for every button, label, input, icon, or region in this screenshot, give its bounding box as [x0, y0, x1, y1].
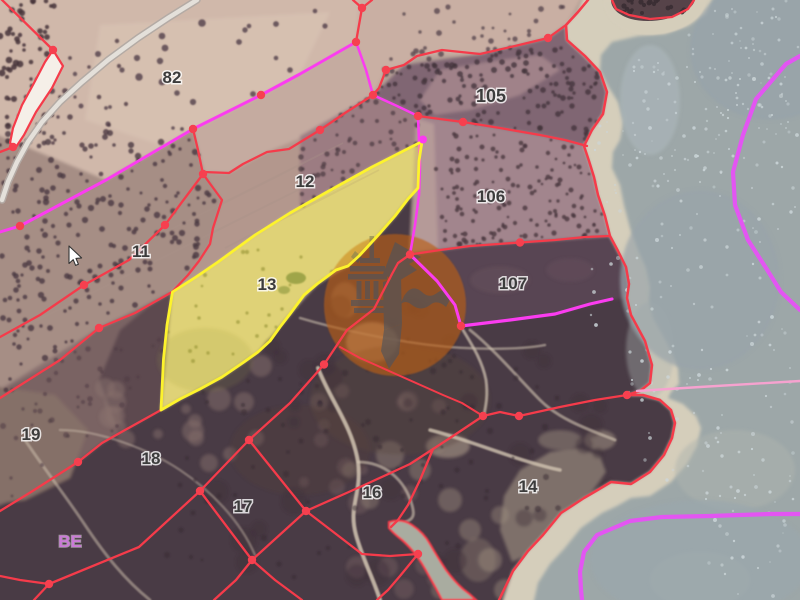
svg-text:107: 107	[499, 274, 527, 293]
svg-text:17: 17	[234, 497, 253, 516]
svg-text:12: 12	[296, 172, 315, 191]
svg-text:BE: BE	[58, 532, 82, 551]
svg-text:13: 13	[258, 275, 277, 294]
svg-text:11: 11	[132, 242, 150, 261]
svg-text:105: 105	[476, 86, 506, 106]
svg-text:18: 18	[142, 449, 161, 468]
svg-text:106: 106	[477, 187, 505, 206]
svg-text:82: 82	[163, 68, 182, 87]
svg-text:14: 14	[519, 477, 538, 496]
svg-text:16: 16	[363, 483, 382, 502]
svg-text:19: 19	[22, 425, 41, 444]
